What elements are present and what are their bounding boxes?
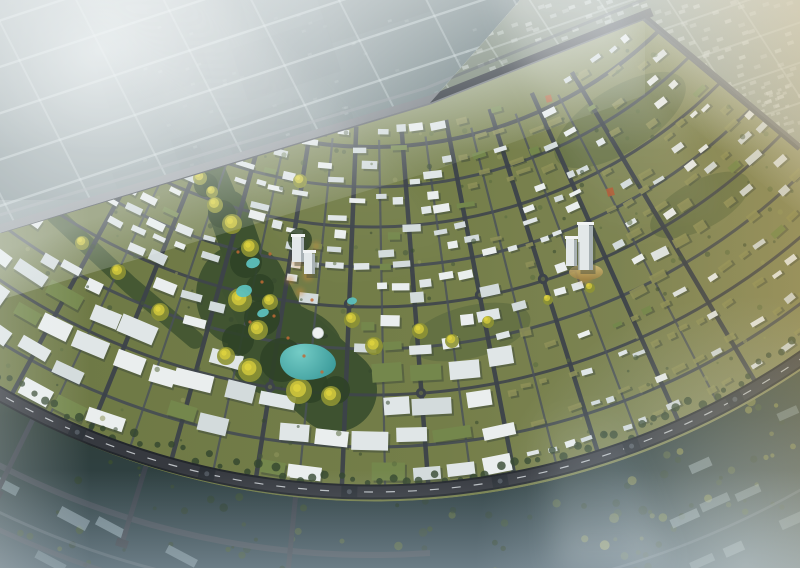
building [383,396,412,418]
street-tree [324,169,328,173]
street-tree [743,243,746,246]
street-tree [768,207,772,211]
street-tree [767,186,772,191]
street-tree [637,184,640,187]
forest-tree [779,505,784,510]
street-tree [654,53,658,57]
forest-tree [621,552,629,560]
building [327,246,344,255]
street-tree [778,209,783,214]
street-tree [733,336,736,339]
building-roof [449,359,481,380]
highway-tree-band [638,420,646,428]
street-tree [116,235,118,237]
street-tree [175,272,178,275]
meadow-patch [628,476,637,485]
building-roof [328,177,344,183]
building-roof [411,397,452,416]
tower-body [292,236,301,262]
building [380,315,401,329]
street-tree [411,249,415,253]
street-tree [562,217,565,220]
building [328,177,346,185]
street-tree [726,105,731,110]
pavilion-dot [320,370,323,373]
highway-tree-band [584,445,592,453]
forest-tree [340,539,345,544]
yellow-tree-highlight [253,324,259,330]
building-roof [380,315,399,326]
highway-tree-band [721,388,726,393]
interchange-center [629,444,634,449]
street-tree [666,367,669,370]
street-tree [646,383,650,387]
forest-tree [394,542,402,550]
street-tree [427,297,431,301]
highway-tree-band [130,429,139,438]
building-roof [353,148,366,154]
building-roof [393,260,411,267]
street-tree [6,364,11,369]
building-roof [410,291,424,303]
pavilion-dot [248,320,251,323]
street-tree [354,245,358,249]
building-roof [427,191,439,200]
street-tree [90,244,95,249]
tower-roof [303,250,316,253]
street-tree [427,164,432,169]
street-tree [663,292,667,296]
building-roof [392,283,410,290]
highway-tree-band [254,459,263,468]
highway-tree-band [51,400,59,408]
street-tree [650,422,653,425]
meadow-patch [640,537,644,541]
building [411,397,454,418]
highway-tree-band [766,352,772,358]
forest-tree [238,552,245,559]
street-tree [429,132,433,136]
roundabout-island [541,277,545,281]
street-tree [26,247,30,251]
pavilion-dot [302,354,305,357]
street-tree [280,386,282,388]
street-tree [419,132,422,135]
street-tree [264,155,267,158]
forest-tree [181,507,188,514]
street-tree [297,425,300,428]
street-tree [650,135,655,140]
street-tree [258,454,263,459]
building-roof [371,362,402,383]
forest-tree [553,499,561,507]
interchange-center [498,479,503,484]
forest-tree [613,537,617,541]
street-tree [386,401,390,405]
forest-tree [122,548,125,551]
street-tree [657,122,662,127]
pavilion-dot [268,252,271,255]
street-tree [600,227,603,230]
highway-tree-band [684,397,692,405]
forest-tree [660,470,668,478]
building [328,215,349,223]
street-tree [370,232,373,235]
building-roof [327,246,342,252]
street-tree [635,212,638,215]
highway-tree-band [350,477,355,482]
forest-tree [638,506,647,515]
building [402,224,423,234]
forest-tree [492,540,498,546]
street-tree [368,369,372,373]
forest-tree [663,451,670,458]
highway-tree-band [320,471,328,479]
highway-tree-band [272,463,281,472]
street-tree [475,421,479,425]
highway-tree-band [390,474,398,482]
yellow-tree-highlight [78,238,82,242]
yellow-tree-highlight [587,284,590,287]
highway-tree-band [745,373,751,379]
street-tree [461,185,464,188]
street-tree [747,181,750,184]
yellow-tree-highlight [348,315,353,320]
building-roof [409,345,432,356]
building-roof [334,229,346,239]
meadow-patch [774,403,778,407]
roundabout-island [419,391,423,395]
aerial-render-canvas [0,0,800,568]
street-tree [60,348,63,351]
street-tree [589,314,592,317]
highway-tree-band [497,461,506,470]
building [361,161,379,172]
highway-tree-band [739,381,745,387]
forest-tree [57,546,62,551]
street-tree [489,180,492,183]
street-tree [580,170,584,174]
street-tree [336,431,342,437]
street-tree [141,309,144,312]
building [449,359,483,382]
meadow-patch [659,513,668,522]
highway-tree-band [431,470,439,478]
street-tree [580,183,585,188]
tower-side [312,254,315,275]
building-roof [402,224,421,232]
tower-roof [291,234,305,237]
highway-tree-band [549,447,556,454]
street-tree [157,196,161,200]
pavilion-dot [236,250,239,253]
street-tree [678,255,684,261]
highway-tree-band [535,457,540,462]
tower-body [578,224,589,270]
building [392,283,412,293]
highway-tree-band [524,457,531,464]
street-tree [548,235,551,238]
building-roof [396,427,427,442]
building-roof [410,179,421,185]
street-tree [707,235,710,238]
street-tree [627,220,633,226]
building-roof [393,197,404,205]
forest-tree [74,476,82,484]
street-tree [616,70,620,74]
highway-tree-band [19,381,25,387]
meadow-patch [790,444,796,450]
forest-tree [656,541,662,547]
building [371,362,404,385]
masterplan-rendering [0,0,800,568]
yellow-tree-highlight [484,317,488,321]
highway-tree-band [574,442,582,450]
forest-tree [501,519,509,527]
highway-tree-band [7,375,13,381]
yellow-tree-highlight [114,267,119,272]
street-tree [375,248,378,251]
forest-tree [153,507,157,511]
building-roof [318,162,332,169]
street-tree [359,453,362,456]
highway-tree-band [233,458,240,465]
pavilion-dot [260,280,263,283]
building [396,427,429,444]
forest-tree [207,496,215,504]
street-tree [334,148,339,153]
street-tree [757,305,762,310]
building-roof [377,282,387,289]
highway-tree-band [339,472,345,478]
building-roof [378,249,394,257]
street-tree [538,205,543,210]
street-tree [197,367,200,370]
pavilion-dot [272,314,275,317]
street-tree [530,275,535,280]
street-tree [155,367,160,372]
meadow-patch [600,540,610,550]
street-tree [765,166,768,169]
forest-tree [450,507,456,513]
yellow-tree-highlight [244,363,251,370]
forest-tree [581,503,587,509]
street-tree [229,317,234,322]
yellow-tree-highlight [545,296,548,299]
highway-tree-band [206,450,213,457]
highway-tree-band [75,413,84,422]
highway-tree-band [100,426,106,432]
forest-tree [419,528,428,537]
highway-tree-band [650,415,657,422]
street-tree [344,130,349,135]
street-tree [262,419,266,423]
street-tree [763,337,765,339]
street-tree [113,427,117,431]
street-tree [300,298,303,301]
building [391,145,409,153]
highway-tree-band [180,445,185,450]
forest-tree [108,460,112,464]
building [314,428,351,450]
street-tree [191,290,193,292]
highway-tree-band [756,359,762,365]
warm-light-glow [312,242,320,250]
building-roof [421,206,432,215]
street-tree [288,441,292,445]
tower-side [589,226,593,271]
yellow-tree-highlight [155,306,160,311]
building-roof [378,129,389,135]
building [487,345,517,369]
street-tree [403,250,408,255]
highway-tree-band [778,349,785,356]
meadow-patch [650,513,655,518]
building [349,198,367,206]
roundabout-island [268,385,272,389]
forest-tree [636,550,641,555]
highway-tree-band [671,403,679,411]
forest-tree [254,538,258,542]
meadow-patch [770,453,774,457]
street-tree [471,239,476,244]
street-tree [790,190,793,193]
forest-tree [612,499,620,507]
highway-tree-band [510,457,519,466]
forest-tree [427,526,432,531]
street-tree [553,250,556,253]
building-roof [383,341,402,350]
yellow-tree-highlight [293,384,301,392]
building-roof [279,423,310,443]
building-roof [362,161,378,170]
forest-tree [422,545,428,551]
forest-tree [719,476,723,480]
forest-tree [675,457,681,463]
street-tree [626,49,630,53]
forest-tree [728,467,735,474]
warm-light-glow [296,288,304,296]
tower-side [574,240,577,267]
building-roof [380,264,391,271]
building-roof [361,322,374,330]
street-tree [107,305,112,310]
street-tree [392,461,397,466]
yellow-tree-highlight [221,350,226,355]
street-tree [56,384,58,386]
highway-tree-band [41,397,49,405]
street-tree [418,260,422,264]
yellow-tree-highlight [416,326,421,331]
street-tree [341,309,346,314]
forest-tree [743,499,747,503]
highway-tree-band [788,337,796,345]
street-tree [504,215,507,218]
street-tree [627,370,630,373]
meadow-patch [581,535,588,542]
meadow-patch [677,448,684,455]
street-tree [760,260,764,264]
tower-roof [577,222,594,225]
meadow-patch [609,513,619,523]
street-tree [740,134,745,139]
street-tree [114,210,117,213]
highway-tree-band [155,442,161,448]
building [383,341,404,353]
building-roof [354,263,370,270]
street-tree [333,262,337,266]
tower-body [304,252,312,274]
highway-tree-band [661,412,669,420]
highway-tree-band [89,423,95,429]
yellow-tree-highlight [296,176,300,180]
forest-tree [689,503,694,508]
highway-tree-band [31,391,37,397]
building-roof [349,198,365,203]
street-tree [743,339,747,343]
tower-roof [565,236,578,239]
street-tree [86,285,89,288]
highway-tree-band [308,474,316,482]
yellow-tree-highlight [208,187,212,191]
street-tree [633,355,638,360]
building [279,423,312,445]
street-tree [370,163,373,166]
building-roof [419,279,432,288]
building [351,431,390,453]
street-tree [575,72,579,76]
highway-tree-band [610,431,618,439]
forest-tree [225,547,230,552]
street-tree [625,136,629,140]
street-tree [121,408,124,411]
forest-tree [395,503,399,507]
yellow-tree-highlight [245,242,250,247]
forest-tree [527,515,532,520]
forest-tree [485,511,492,518]
meadow-patch [769,432,774,437]
building [393,260,413,270]
pavilion-dot [310,298,313,301]
forest-tree [220,503,228,511]
building [334,229,348,241]
street-tree [462,128,467,133]
forest-tree [242,522,246,526]
yellow-tree-highlight [448,336,452,340]
forest-tree [27,533,34,540]
yellow-tree-highlight [211,200,216,205]
interchange-center [75,430,80,435]
street-tree [342,150,346,154]
building [410,363,444,383]
building-roof [383,396,410,415]
street-tree [46,271,51,276]
building-roof [372,462,405,480]
street-tree [210,325,214,329]
building-roof [376,194,387,199]
highway-tree-band [376,478,382,484]
street-tree [562,117,565,120]
street-tree [180,439,182,441]
street-tree [274,452,279,457]
street-tree [773,240,776,243]
street-tree [636,109,640,113]
forest-tree [726,502,731,507]
street-tree [497,155,502,160]
building-roof [460,314,474,326]
street-tree [566,358,570,362]
street-tree [725,250,730,255]
